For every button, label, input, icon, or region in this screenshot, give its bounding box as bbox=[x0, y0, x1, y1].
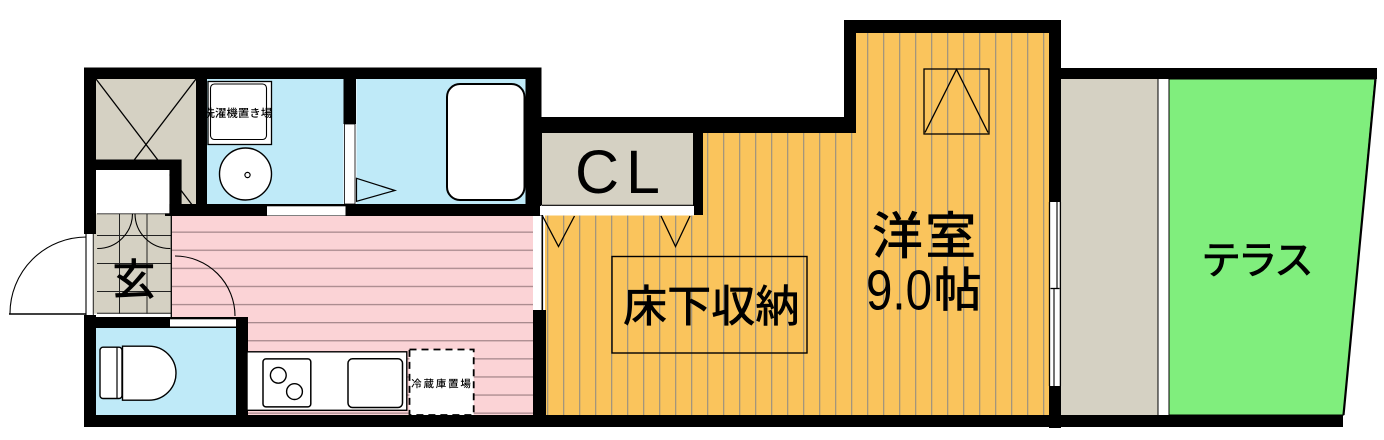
svg-text:CL: CL bbox=[575, 138, 667, 206]
svg-text:9.0: 9.0 bbox=[866, 259, 932, 323]
